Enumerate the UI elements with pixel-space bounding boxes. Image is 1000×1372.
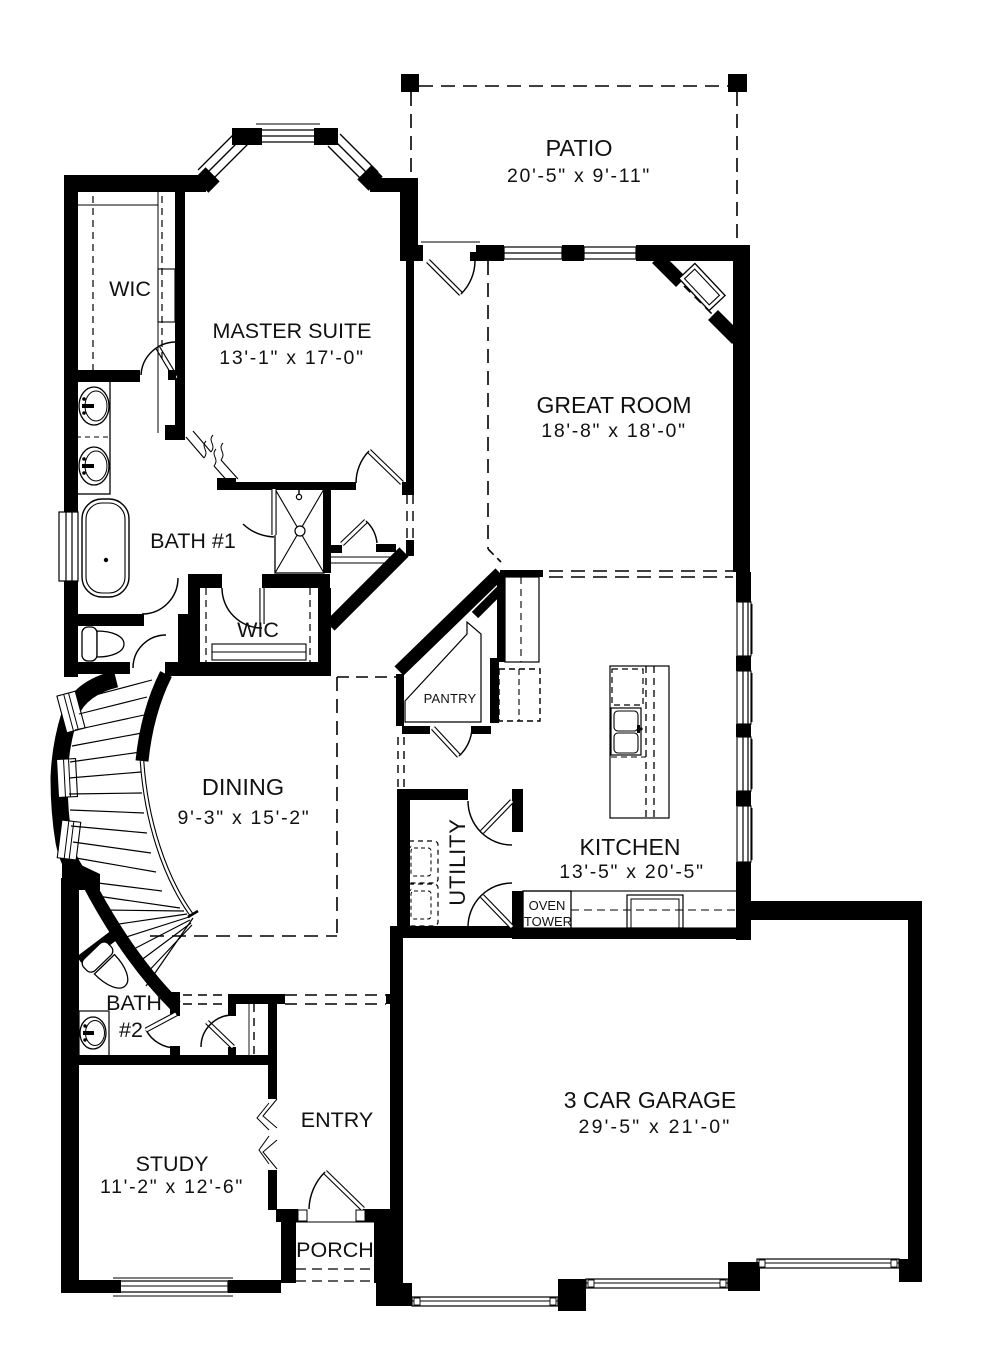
svg-text:MASTER SUITE: MASTER SUITE [213,319,372,343]
svg-text:11'-2" x 12'-6": 11'-2" x 12'-6" [100,1176,244,1198]
svg-text:KITCHEN: KITCHEN [580,834,681,860]
svg-text:PANTRY: PANTRY [424,691,477,706]
svg-text:WIC: WIC [109,277,151,301]
svg-text:18'-8" x 18'-0": 18'-8" x 18'-0" [541,420,686,442]
svg-text:9'-3" x 15'-2": 9'-3" x 15'-2" [178,807,311,829]
svg-text:ENTRY: ENTRY [301,1108,373,1132]
svg-text:BATH #1: BATH #1 [150,529,236,553]
svg-text:GREAT ROOM: GREAT ROOM [536,392,691,418]
svg-text:PATIO: PATIO [545,135,612,161]
svg-text:20'-5" x 9'-11": 20'-5" x 9'-11" [507,165,651,187]
svg-text:29'-5" x 21'-0": 29'-5" x 21'-0" [579,1116,732,1138]
svg-text:TOWER: TOWER [524,914,572,929]
svg-text:STUDY: STUDY [136,1152,209,1176]
svg-text:3 CAR GARAGE: 3 CAR GARAGE [564,1087,737,1113]
svg-text:13'-1" x 17'-0": 13'-1" x 17'-0" [219,347,364,369]
svg-text:BATH: BATH [106,991,162,1015]
svg-text:13'-5" x 20'-5": 13'-5" x 20'-5" [559,861,704,883]
svg-text:#2: #2 [119,1018,143,1042]
svg-text:OVEN: OVEN [529,898,566,913]
svg-text:WIC: WIC [237,618,279,642]
svg-text:UTILITY: UTILITY [445,818,470,906]
svg-text:DINING: DINING [202,774,284,800]
svg-text:PORCH: PORCH [296,1238,374,1262]
